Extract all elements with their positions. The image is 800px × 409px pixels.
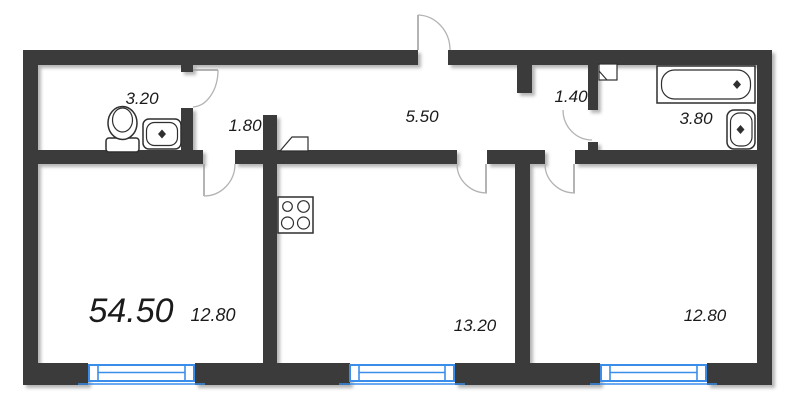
sink-icon <box>143 119 181 149</box>
wall-right <box>757 50 772 385</box>
wall-bathroom-stub <box>181 62 193 72</box>
stove-icon <box>278 197 313 233</box>
door-swing-arc <box>418 15 450 50</box>
wall-bathroom2-bump <box>588 142 598 152</box>
door-swing-arc <box>457 164 487 193</box>
wall-top-right <box>448 50 772 65</box>
doors <box>193 15 592 196</box>
wall-left <box>23 50 38 385</box>
cabinet-icon <box>280 137 308 151</box>
label-total-area: 54.50 <box>88 292 173 330</box>
door-swing-arc <box>545 164 575 193</box>
wall-bathroom2-left <box>588 62 598 110</box>
wall-mid-4 <box>575 150 772 164</box>
fixtures <box>106 64 755 233</box>
door-bathroom2 <box>563 110 592 140</box>
door-swing-arc <box>204 164 235 196</box>
wall-bottom-1 <box>23 363 88 385</box>
door-bathroom <box>193 70 218 107</box>
wall-bathroom-right <box>181 108 193 154</box>
door-entrance <box>418 15 450 50</box>
wall-kitchen-right <box>515 150 530 367</box>
panel-box <box>599 64 617 80</box>
door-living-room <box>204 164 235 196</box>
label-hallway-area: 5.50 <box>405 107 439 126</box>
door-swing-arc <box>563 110 592 140</box>
label-living-room-area: 12.80 <box>190 305 235 325</box>
label-vestibule-area: 1.40 <box>554 87 588 106</box>
door-bedroom <box>545 164 575 193</box>
door-kitchen <box>457 164 487 193</box>
windows <box>78 365 717 384</box>
wall-bottom-4 <box>707 363 772 385</box>
panel-icon <box>599 64 617 80</box>
label-bedroom-area: 12.80 <box>684 306 727 325</box>
cabinet-outline <box>280 137 308 151</box>
sink2-icon <box>727 110 755 149</box>
stove-burner <box>298 217 310 229</box>
wall-top-left <box>23 50 418 65</box>
label-bathroom2-area: 3.80 <box>679 109 713 128</box>
floor-plan-svg: 3.20 1.80 5.50 1.40 3.80 54.50 12.80 13.… <box>0 0 800 409</box>
stove-burner <box>298 201 310 213</box>
stove-burner <box>282 217 294 229</box>
toilet-icon <box>106 107 139 153</box>
label-corridor-width: 1.80 <box>228 116 262 135</box>
wall-vestibule-stub <box>517 62 532 93</box>
window-kitchen <box>339 365 465 384</box>
floor-plan: 3.20 1.80 5.50 1.40 3.80 54.50 12.80 13.… <box>0 0 800 409</box>
toilet-bowl-inner <box>113 108 133 132</box>
label-kitchen-area: 13.20 <box>454 316 497 335</box>
stove-burner <box>283 202 293 212</box>
door-swing-arc <box>193 70 218 107</box>
wall-kitchen-left <box>263 115 277 367</box>
window-living-room <box>78 365 205 384</box>
window-bedroom <box>590 365 717 384</box>
label-bathroom-area: 3.20 <box>125 89 159 108</box>
bathtub-icon <box>657 66 755 103</box>
